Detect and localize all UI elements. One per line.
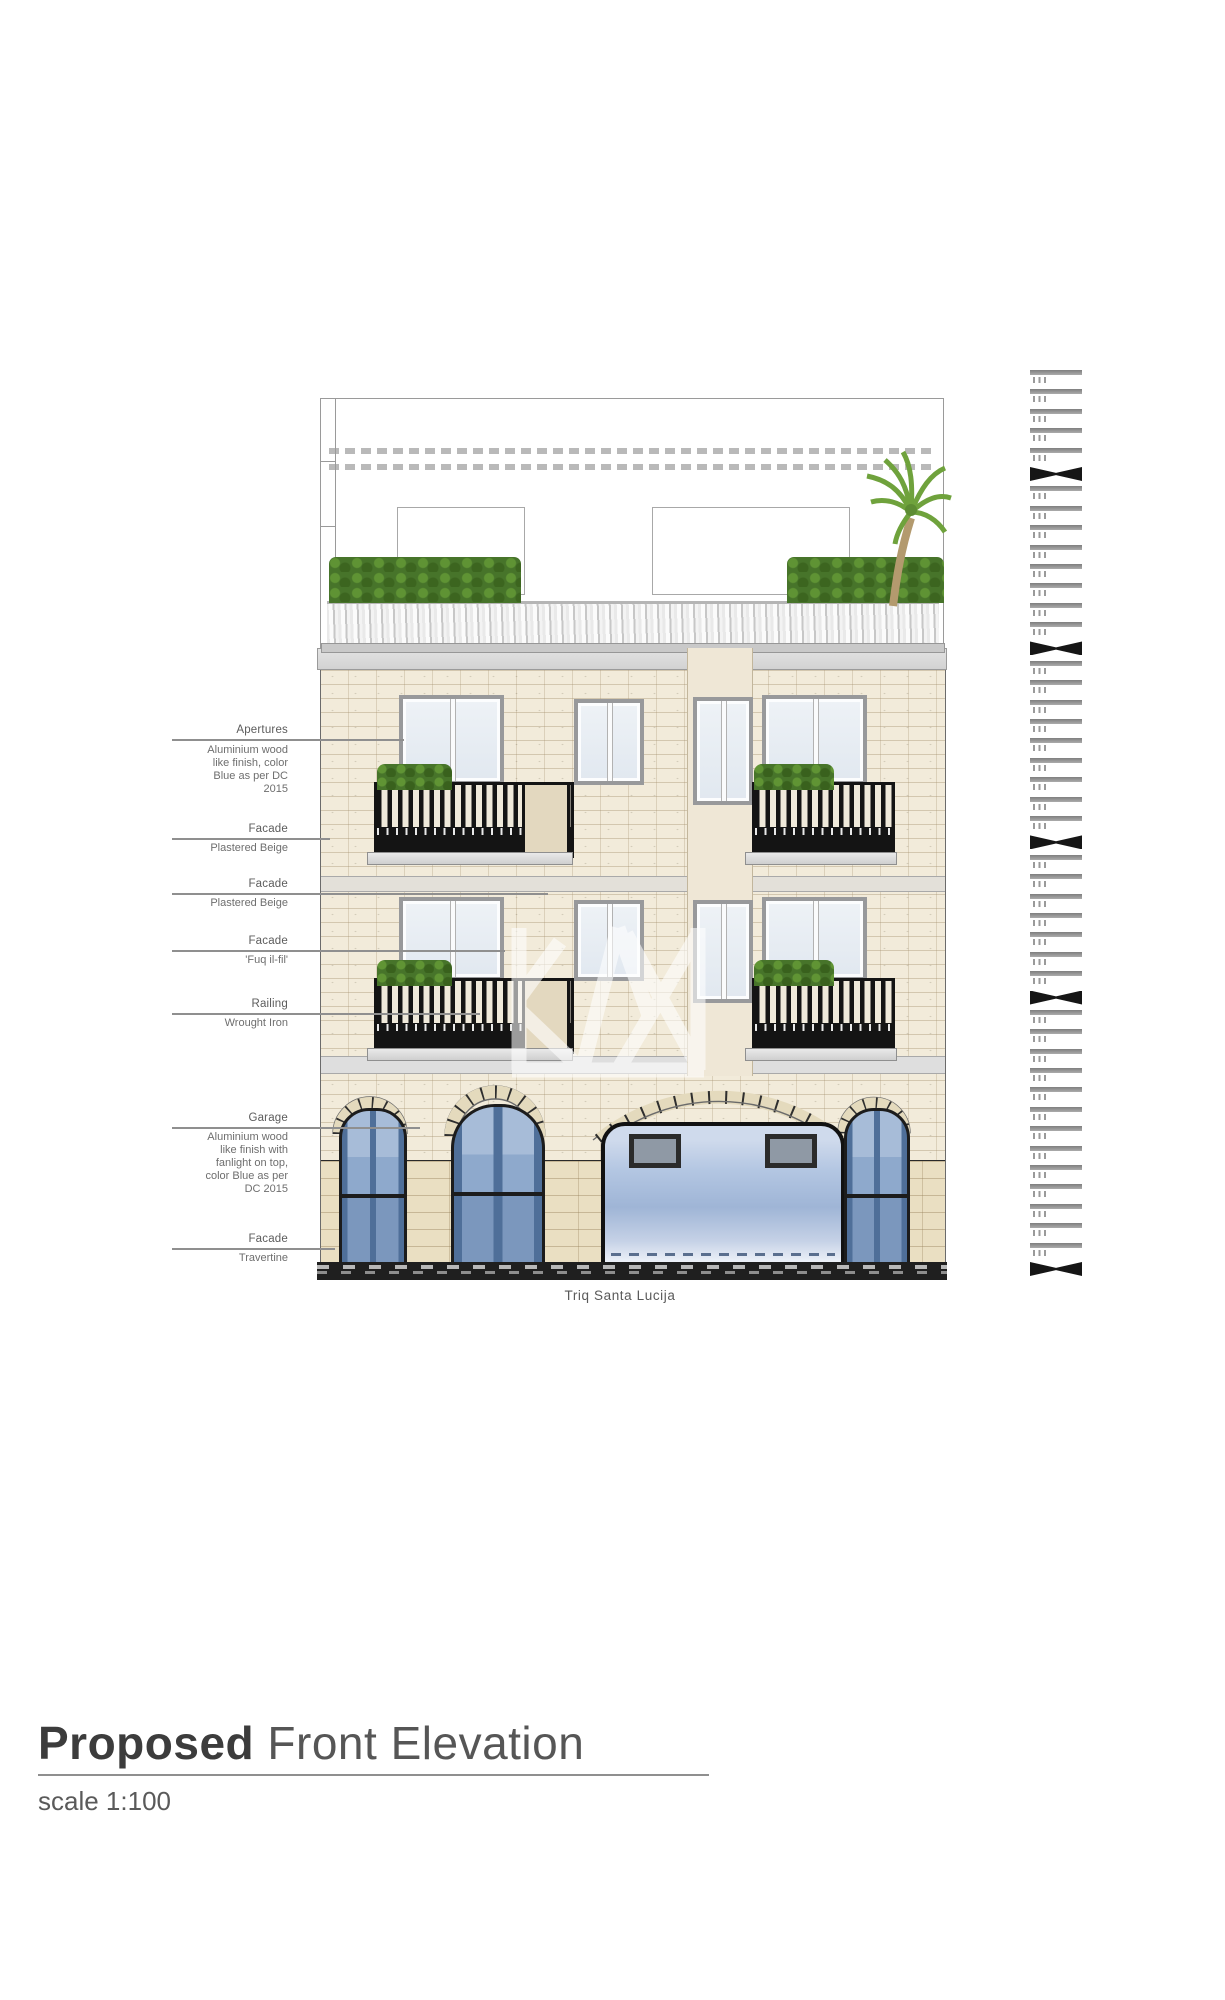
leader-line-facade-2	[172, 893, 548, 895]
annotation-body-facade-1: Plastered Beige	[148, 842, 288, 855]
party-wall-bar	[1030, 1126, 1082, 1131]
drawing-sheet: Apertures Aluminium wood like finish, co…	[0, 0, 1225, 2000]
party-wall-bar	[1030, 603, 1082, 608]
balcony-slab	[745, 852, 897, 865]
window-upper-shaft	[693, 697, 753, 805]
annotation-body-facade-3: 'Fuq il-fil'	[148, 954, 288, 967]
party-wall-bar	[1030, 894, 1082, 899]
leader-line-railing	[172, 1013, 480, 1015]
party-wall-bar	[1030, 370, 1082, 375]
annotation-body-railing: Wrought Iron	[148, 1017, 288, 1030]
leader-line-facade-3	[172, 950, 505, 952]
leader-line-facade-travertine	[172, 1248, 335, 1250]
drawing-title-emphasis: Proposed	[38, 1717, 254, 1769]
party-wall-bar	[1030, 1068, 1082, 1073]
party-wall-bar	[1030, 797, 1082, 802]
party-wall-bar	[1030, 661, 1082, 666]
party-wall-bar	[1030, 1165, 1082, 1170]
party-wall-bar	[1030, 855, 1082, 860]
annotation-title-facade-2: Facade	[148, 878, 288, 890]
party-wall-cross-mark	[1030, 991, 1082, 1005]
annotation-body-garage: Aluminium wood like finish with fanlight…	[148, 1131, 288, 1196]
leader-line-apertures	[172, 739, 404, 741]
entrance-door-1	[339, 1108, 407, 1268]
garage-door	[601, 1122, 845, 1270]
title-underline	[38, 1774, 709, 1776]
floor-slab-band	[321, 876, 945, 892]
annotation-title-apertures: Apertures	[148, 724, 288, 736]
party-wall-bar	[1030, 1146, 1082, 1151]
party-wall-bar	[1030, 525, 1082, 530]
roof-hedge-left	[329, 557, 521, 603]
balcony-upper-right	[752, 782, 895, 858]
roof-parapet-zone	[320, 398, 944, 650]
party-wall-strip	[1030, 370, 1082, 1282]
base-plinth	[317, 1262, 947, 1280]
party-wall-bar	[1030, 622, 1082, 627]
party-wall-bar	[1030, 1184, 1082, 1189]
party-wall-bar	[1030, 932, 1082, 937]
party-wall-bar	[1030, 389, 1082, 394]
balcony-lower-right	[752, 978, 895, 1054]
annotation-body-apertures: Aluminium wood like finish, color Blue a…	[148, 744, 288, 796]
party-wall-bar	[1030, 545, 1082, 550]
party-wall-cross-mark	[1030, 467, 1082, 481]
party-wall-bar	[1030, 486, 1082, 491]
leader-line-garage	[172, 1127, 420, 1129]
building-elevation	[320, 396, 944, 1280]
ground-floor-wall	[320, 1076, 946, 1262]
party-wall-bar	[1030, 1204, 1082, 1209]
annotation-title-garage: Garage	[148, 1112, 288, 1124]
party-wall-bar	[1030, 409, 1082, 414]
leader-line-facade-1	[172, 838, 330, 840]
party-wall-bar	[1030, 564, 1082, 569]
annotation-title-facade-3: Facade	[148, 935, 288, 947]
party-wall-bar	[1030, 448, 1082, 453]
annotation-title-facade-travertine: Facade	[148, 1233, 288, 1245]
watermark-logo	[498, 898, 718, 1078]
party-wall-bar	[1030, 1010, 1082, 1015]
roof-balustrade	[327, 601, 939, 646]
balcony-planter-upper-right	[754, 764, 834, 790]
balcony-skirt	[755, 1023, 892, 1051]
annotation-title-railing: Railing	[148, 998, 288, 1010]
balcony-planter-lower-right	[754, 960, 834, 986]
party-wall-bar	[1030, 1049, 1082, 1054]
balcony-railing	[755, 981, 892, 1023]
scale-note: scale 1:100	[38, 1786, 171, 1817]
party-wall-bar	[1030, 913, 1082, 918]
party-wall-bar	[1030, 971, 1082, 976]
balcony-skirt	[755, 827, 892, 855]
party-wall-cross-mark	[1030, 1262, 1082, 1276]
window-upper-middle	[574, 699, 644, 785]
entrance-door-2	[451, 1104, 545, 1268]
annotation-title-facade-1: Facade	[148, 823, 288, 835]
party-wall-bar	[1030, 1029, 1082, 1034]
drawing-title: Proposed Front Elevation	[38, 1716, 584, 1770]
drawing-title-rest: Front Elevation	[254, 1717, 584, 1769]
party-wall-bar	[1030, 428, 1082, 433]
party-wall-bar	[1030, 680, 1082, 685]
balcony-upper-left	[374, 782, 574, 858]
garage-door-window-left	[629, 1134, 681, 1168]
entrance-door-3	[844, 1108, 910, 1268]
party-wall-bar	[1030, 758, 1082, 763]
balcony-privacy-panel	[522, 782, 570, 858]
party-wall-bar	[1030, 700, 1082, 705]
balcony-slab	[367, 852, 573, 865]
party-wall-bar	[1030, 777, 1082, 782]
street-label: Triq Santa Lucija	[470, 1288, 770, 1303]
party-wall-bar	[1030, 952, 1082, 957]
balcony-planter-lower-left	[377, 960, 452, 986]
party-wall-bar	[1030, 583, 1082, 588]
party-wall-cross-mark	[1030, 641, 1082, 655]
party-wall-bar	[1030, 506, 1082, 511]
party-wall-bar	[1030, 874, 1082, 879]
party-wall-bar	[1030, 738, 1082, 743]
party-wall-bar	[1030, 1243, 1082, 1248]
party-wall-bar	[1030, 1107, 1082, 1112]
palm-tree-icon	[841, 445, 953, 607]
annotation-body-facade-2: Plastered Beige	[148, 897, 288, 910]
balcony-slab	[745, 1048, 897, 1061]
garage-door-window-right	[765, 1134, 817, 1168]
roof-balustrade-rail	[321, 643, 945, 653]
annotation-body-facade-travertine: Travertine	[148, 1252, 288, 1265]
party-wall-bar	[1030, 816, 1082, 821]
party-wall-bar	[1030, 1223, 1082, 1228]
balcony-planter-upper-left	[377, 764, 452, 790]
party-wall-cross-mark	[1030, 835, 1082, 849]
balcony-railing	[755, 785, 892, 827]
party-wall-bar	[1030, 1087, 1082, 1092]
party-wall-bar	[1030, 719, 1082, 724]
